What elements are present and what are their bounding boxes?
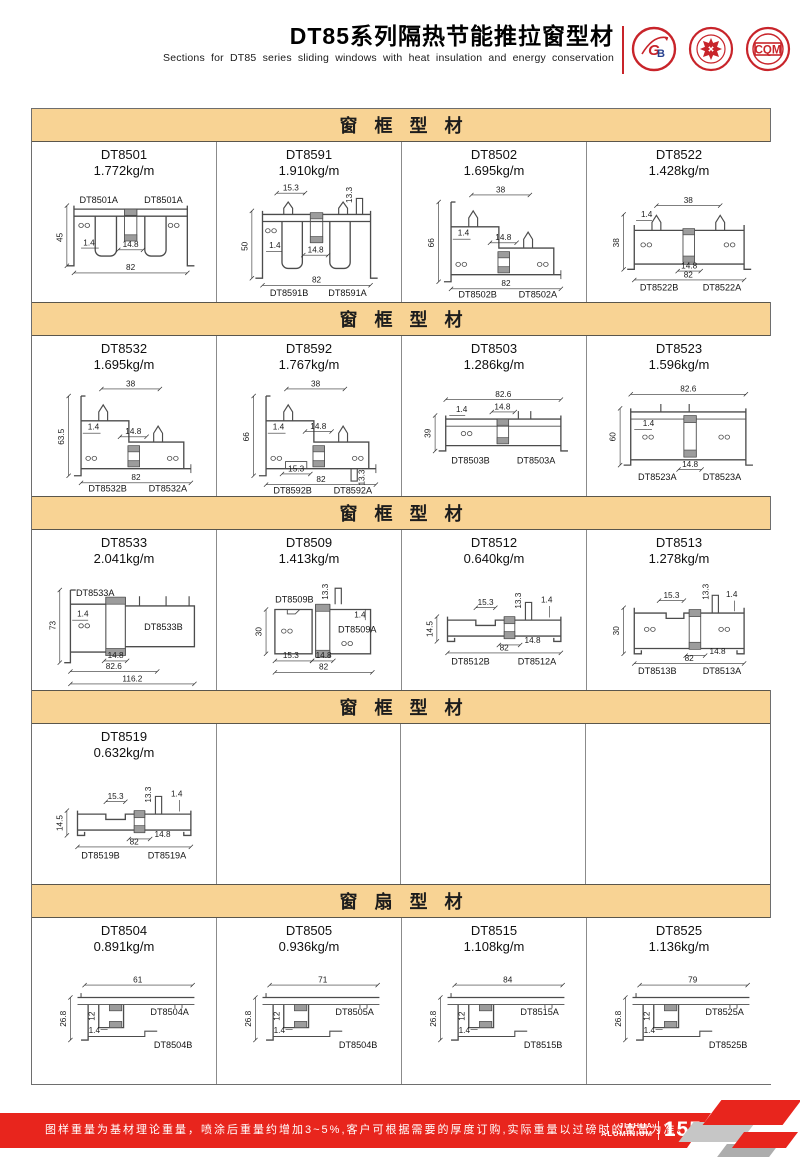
svg-text:DT8503B: DT8503B	[451, 455, 489, 465]
profile-table: 窗框型材 DT8501 1.772kg/m 451.414.882DT8501A…	[31, 108, 771, 1085]
svg-text:13.3: 13.3	[321, 583, 330, 599]
profile-code: DT8502	[402, 147, 586, 163]
svg-text:DT8513B: DT8513B	[638, 666, 676, 676]
profile-cell-header: DT8515 1.108kg/m	[402, 918, 586, 955]
profile-cell-header	[401, 724, 584, 729]
profile-weight: 1.136kg/m	[587, 939, 771, 955]
profile-cell: DT8505 0.936kg/m 7126.8121.4DT8505ADT850…	[217, 918, 402, 1084]
profile-weight: 1.910kg/m	[217, 163, 401, 179]
svg-text:14.8: 14.8	[125, 427, 141, 436]
header-text-block: DT85系列隔热节能推拉窗型材 Sections for DT85 series…	[0, 22, 614, 64]
svg-text:DT8525B: DT8525B	[709, 1040, 747, 1050]
section-frame-3: 窗框型材 DT8533 2.041kg/m 731.414.882.6116.2…	[32, 496, 770, 690]
svg-text:14.8: 14.8	[710, 647, 726, 656]
profile-cell: DT8519 0.632kg/m 15.313.31.414.514.882DT…	[32, 724, 217, 884]
svg-text:DT8502A: DT8502A	[519, 290, 558, 300]
svg-text:14.5: 14.5	[425, 621, 434, 637]
profile-drawing: 7926.8121.4DT8525ADT8525B	[587, 955, 771, 1079]
page-title: DT85系列隔热节能推拉窗型材	[0, 22, 614, 50]
svg-text:1.4: 1.4	[644, 1026, 656, 1035]
profile-cell-header	[586, 724, 770, 729]
profile-weight: 1.413kg/m	[217, 551, 401, 567]
page-footer: 图样重量为基材理论重量，喷涂后重量约增加3~5%,客户可根据需要的厚度订购,实际…	[0, 1100, 800, 1167]
profile-drawing: 15.313.31.43014.882DT8513BDT8513A	[587, 567, 771, 691]
svg-text:50: 50	[240, 241, 249, 251]
svg-text:82.6: 82.6	[680, 385, 696, 394]
profile-drawing: 82.61.414.839DT8503BDT8503A	[402, 373, 586, 497]
profile-cell: DT8592 1.767kg/m 38661.414.815.38213.3DT…	[217, 336, 402, 496]
profile-drawing: 451.414.882DT8501ADT8501A	[32, 179, 216, 303]
profile-weight: 0.936kg/m	[217, 939, 401, 955]
brand-name: JIAHUA ALUMINIUM	[601, 1122, 653, 1138]
svg-text:14.8: 14.8	[525, 636, 541, 645]
profile-code: DT8512	[402, 535, 586, 551]
profile-code: DT8513	[587, 535, 771, 551]
profile-weight: 0.891kg/m	[32, 939, 216, 955]
svg-text:15.3: 15.3	[288, 464, 304, 473]
profile-cell	[586, 724, 770, 884]
svg-text:82: 82	[319, 663, 329, 672]
profile-weight: 2.041kg/m	[32, 551, 216, 567]
profile-cell: DT8501 1.772kg/m 451.414.882DT8501ADT850…	[32, 142, 217, 302]
svg-text:39: 39	[424, 428, 433, 438]
svg-text:DT8512B: DT8512B	[451, 656, 489, 666]
profile-code: DT8515	[402, 923, 586, 939]
profile-cell-header: DT8512 0.640kg/m	[402, 530, 586, 567]
profile-weight: 1.428kg/m	[587, 163, 771, 179]
profile-cell: DT8533 2.041kg/m 731.414.882.6116.2DT853…	[32, 530, 217, 690]
brand-separator	[658, 1121, 659, 1140]
decor-parallelogram-red-1	[703, 1100, 800, 1125]
profile-code: DT8501	[32, 147, 216, 163]
section-title: 窗框型材	[323, 306, 480, 332]
footer-note: 图样重量为基材理论重量，喷涂后重量约增加3~5%,客户可根据需要的厚度订购,实际…	[45, 1113, 690, 1148]
svg-text:38: 38	[684, 196, 694, 205]
profile-cell: DT8503 1.286kg/m 82.61.414.839DT8503BDT8…	[402, 336, 587, 496]
section-frame-1: 窗框型材 DT8501 1.772kg/m 451.414.882DT8501A…	[32, 109, 770, 302]
profile-cell-header: DT8502 1.695kg/m	[402, 142, 586, 179]
profile-drawing: 731.414.882.6116.2DT8533ADT8533B	[32, 567, 216, 691]
svg-text:1.4: 1.4	[541, 595, 553, 604]
svg-text:DT8504B: DT8504B	[339, 1040, 377, 1050]
profile-cell: DT8502 1.695kg/m 38661.414.882DT8502BDT8…	[402, 142, 587, 302]
svg-text:14.8: 14.8	[155, 830, 171, 839]
svg-text:DT8504B: DT8504B	[154, 1040, 192, 1050]
profile-cell: DT8515 1.108kg/m 8426.8121.4DT8515ADT851…	[402, 918, 587, 1084]
svg-text:13.3: 13.3	[514, 592, 523, 608]
profile-cell-header: DT8505 0.936kg/m	[217, 918, 401, 955]
svg-text:38: 38	[496, 185, 506, 194]
section-band: 窗框型材	[32, 496, 770, 530]
svg-text:12: 12	[272, 1011, 281, 1021]
svg-text:DT8519A: DT8519A	[148, 850, 187, 860]
svg-text:82: 82	[126, 263, 136, 272]
svg-text:DT8522B: DT8522B	[640, 283, 678, 293]
profile-cell: DT8532 1.695kg/m 3863.51.414.882DT8532BD…	[32, 336, 217, 496]
profile-cell: DT8512 0.640kg/m 15.313.31.414.514.882DT…	[402, 530, 587, 690]
svg-text:14.8: 14.8	[108, 651, 124, 660]
profile-cell: DT8522 1.428kg/m 381.43814.882DT8522BDT8…	[587, 142, 771, 302]
profile-code: DT8522	[587, 147, 771, 163]
svg-text:14.8: 14.8	[310, 422, 326, 431]
section-band: 窗框型材	[32, 690, 770, 724]
profile-weight: 1.695kg/m	[32, 357, 216, 373]
svg-text:12: 12	[457, 1011, 466, 1021]
profile-code: DT8523	[587, 341, 771, 357]
svg-text:15.3: 15.3	[663, 591, 679, 600]
svg-text:38: 38	[311, 379, 321, 388]
profile-drawing: 15.313.31.414.514.882DT8519BDT8519A	[32, 761, 216, 885]
profile-weight: 1.108kg/m	[402, 939, 586, 955]
svg-text:82: 82	[312, 276, 322, 285]
svg-text:82: 82	[684, 270, 694, 279]
profile-row: DT8533 2.041kg/m 731.414.882.6116.2DT853…	[32, 530, 770, 690]
svg-text:60: 60	[609, 432, 618, 442]
svg-text:DT8501A: DT8501A	[144, 195, 183, 205]
section-frame-4: 窗框型材 DT8519 0.632kg/m 15.313.31.414.514.…	[32, 690, 770, 884]
svg-text:1.4: 1.4	[89, 1026, 101, 1035]
svg-text:1.4: 1.4	[273, 423, 285, 432]
section-sash: 窗扇型材 DT8504 0.891kg/m 6126.8121.4DT8504A…	[32, 884, 770, 1084]
svg-text:DT8533B: DT8533B	[144, 622, 182, 632]
profile-drawing: 381.43814.882DT8522BDT8522A	[587, 179, 771, 303]
profile-cell-header	[217, 724, 400, 729]
svg-text:82: 82	[501, 279, 511, 288]
svg-text:DT8515B: DT8515B	[524, 1040, 562, 1050]
svg-text:1.4: 1.4	[641, 210, 653, 219]
profile-cell	[401, 724, 585, 884]
svg-text:13.3: 13.3	[357, 469, 366, 485]
profile-cell-header: DT8501 1.772kg/m	[32, 142, 216, 179]
profile-weight: 1.772kg/m	[32, 163, 216, 179]
svg-text:82: 82	[316, 475, 326, 484]
profile-drawing: 82.6601.414.8DT8523ADT8523A	[587, 373, 771, 497]
svg-text:15.3: 15.3	[283, 651, 299, 660]
profile-cell: DT8513 1.278kg/m 15.313.31.43014.882DT85…	[587, 530, 771, 690]
profile-cell-header: DT8591 1.910kg/m	[217, 142, 401, 179]
profile-drawing: 15.313.3501.414.882DT8591BDT8591A	[217, 179, 401, 303]
svg-text:DT8519B: DT8519B	[81, 850, 119, 860]
svg-text:61: 61	[133, 975, 143, 984]
svg-text:1.4: 1.4	[726, 590, 738, 599]
svg-text:73: 73	[48, 620, 57, 630]
svg-text:DT8592A: DT8592A	[334, 485, 373, 495]
profile-row: DT8519 0.632kg/m 15.313.31.414.514.882DT…	[32, 724, 770, 884]
svg-text:1.4: 1.4	[354, 610, 366, 619]
profile-cell-header: DT8592 1.767kg/m	[217, 336, 401, 373]
svg-text:82.6: 82.6	[106, 662, 122, 671]
page-subtitle: Sections for DT85 series sliding windows…	[0, 52, 614, 64]
svg-text:DT8522A: DT8522A	[703, 283, 742, 293]
svg-text:1.4: 1.4	[456, 405, 468, 414]
svg-text:14.8: 14.8	[316, 651, 332, 660]
profile-cell-header: DT8513 1.278kg/m	[587, 530, 771, 567]
svg-text:14.8: 14.8	[494, 402, 510, 411]
profile-code: DT8509	[217, 535, 401, 551]
profile-drawing: 15.313.31.414.514.882DT8512BDT8512A	[402, 567, 586, 691]
profile-code: DT8525	[587, 923, 771, 939]
svg-text:13.3: 13.3	[345, 187, 354, 203]
svg-text:DT8592B: DT8592B	[273, 485, 311, 495]
profile-weight: 0.640kg/m	[402, 551, 586, 567]
svg-text:1.4: 1.4	[458, 229, 470, 238]
cqm-cert-icon: CQM	[744, 24, 792, 74]
svg-text:14.8: 14.8	[308, 246, 324, 255]
svg-text:DT8504A: DT8504A	[150, 1007, 189, 1017]
profile-code: DT8503	[402, 341, 586, 357]
section-frame-2: 窗框型材 DT8532 1.695kg/m 3863.51.414.882DT8…	[32, 302, 770, 496]
svg-text:DT8515A: DT8515A	[520, 1007, 559, 1017]
svg-text:DT8523A: DT8523A	[638, 472, 677, 482]
profile-cell: DT8523 1.596kg/m 82.6601.414.8DT8523ADT8…	[587, 336, 771, 496]
section-band: 窗扇型材	[32, 884, 770, 918]
profile-cell-header: DT8525 1.136kg/m	[587, 918, 771, 955]
svg-text:15.3: 15.3	[283, 184, 299, 193]
svg-text:DT8505A: DT8505A	[335, 1007, 374, 1017]
svg-text:82.6: 82.6	[495, 390, 511, 399]
profile-code: DT8519	[32, 729, 216, 745]
profile-weight: 0.632kg/m	[32, 745, 216, 761]
svg-text:14.8: 14.8	[123, 240, 139, 249]
svg-text:DT8533A: DT8533A	[76, 588, 115, 598]
svg-text:1.4: 1.4	[643, 419, 655, 428]
svg-text:30: 30	[255, 627, 264, 637]
profile-weight: 1.278kg/m	[587, 551, 771, 567]
svg-text:82: 82	[685, 654, 695, 663]
svg-text:DT8513A: DT8513A	[703, 666, 742, 676]
profile-cell-header: DT8509 1.413kg/m	[217, 530, 401, 567]
svg-text:38: 38	[126, 379, 136, 388]
profile-weight: 1.286kg/m	[402, 357, 586, 373]
svg-text:71: 71	[318, 975, 328, 984]
profile-code: DT8505	[217, 923, 401, 939]
flower-cert-icon	[687, 24, 735, 74]
svg-text:14.5: 14.5	[55, 815, 64, 831]
svg-text:66: 66	[427, 238, 436, 248]
profile-drawing: 3863.51.414.882DT8532BDT8532A	[32, 373, 216, 497]
profile-code: DT8592	[217, 341, 401, 357]
svg-text:82: 82	[130, 837, 140, 846]
svg-text:26.8: 26.8	[59, 1010, 68, 1026]
svg-text:1.4: 1.4	[77, 610, 89, 619]
svg-text:DT8532A: DT8532A	[149, 484, 188, 494]
svg-text:12: 12	[87, 1011, 96, 1021]
svg-text:82: 82	[131, 473, 141, 482]
profile-cell-header: DT8522 1.428kg/m	[587, 142, 771, 179]
svg-text:45: 45	[55, 232, 64, 242]
svg-text:DT8525A: DT8525A	[705, 1007, 744, 1017]
profile-drawing: 38661.414.882DT8502BDT8502A	[402, 179, 586, 303]
gb-cert-icon: G B	[630, 24, 678, 74]
section-title: 窗框型材	[323, 500, 480, 526]
svg-text:DT8503A: DT8503A	[517, 455, 556, 465]
profile-drawing: 7126.8121.4DT8505ADT8504B	[217, 955, 401, 1079]
section-title: 窗框型材	[323, 694, 480, 720]
svg-text:DT8523A: DT8523A	[703, 472, 742, 482]
profile-drawing: 3013.31.415.314.882DT8509BDT8509A	[217, 567, 401, 691]
profile-cell-header: DT8532 1.695kg/m	[32, 336, 216, 373]
cert-logos: G B CQM	[630, 24, 792, 74]
section-title: 窗框型材	[323, 112, 480, 138]
footer-band: 图样重量为基材理论重量，喷涂后重量约增加3~5%,客户可根据需要的厚度订购,实际…	[0, 1113, 711, 1148]
svg-text:B: B	[657, 48, 665, 60]
header-divider	[622, 26, 624, 74]
page-header: DT85系列隔热节能推拉窗型材 Sections for DT85 series…	[0, 22, 800, 84]
svg-text:63.5: 63.5	[57, 428, 66, 444]
profile-code: DT8532	[32, 341, 216, 357]
svg-text:15.3: 15.3	[108, 792, 124, 801]
svg-text:26.8: 26.8	[429, 1010, 438, 1026]
svg-text:26.8: 26.8	[614, 1010, 623, 1026]
profile-row: DT8501 1.772kg/m 451.414.882DT8501ADT850…	[32, 142, 770, 302]
svg-text:30: 30	[612, 626, 621, 636]
profile-cell: DT8504 0.891kg/m 6126.8121.4DT8504ADT850…	[32, 918, 217, 1084]
profile-cell-header: DT8533 2.041kg/m	[32, 530, 216, 567]
svg-text:1.4: 1.4	[171, 789, 183, 798]
profile-weight: 1.596kg/m	[587, 357, 771, 373]
svg-text:14.8: 14.8	[681, 261, 697, 270]
profile-cell: DT8591 1.910kg/m 15.313.3501.414.882DT85…	[217, 142, 402, 302]
profile-cell-header: DT8504 0.891kg/m	[32, 918, 216, 955]
profile-cell: DT8509 1.413kg/m 3013.31.415.314.882DT85…	[217, 530, 402, 690]
profile-weight: 1.695kg/m	[402, 163, 586, 179]
svg-text:82: 82	[500, 643, 510, 652]
svg-text:38: 38	[612, 238, 621, 248]
decor-parallelogram-red-2	[732, 1132, 798, 1148]
svg-text:15.3: 15.3	[478, 598, 494, 607]
svg-text:DT8509B: DT8509B	[275, 594, 313, 604]
profile-drawing: 8426.8121.4DT8515ADT8515B	[402, 955, 586, 1079]
svg-text:DT8512A: DT8512A	[518, 656, 557, 666]
svg-text:1.4: 1.4	[269, 241, 281, 250]
brand-line2: ALUMINIUM	[601, 1130, 653, 1138]
profile-row: DT8504 0.891kg/m 6126.8121.4DT8504ADT850…	[32, 918, 770, 1084]
svg-text:14.8: 14.8	[495, 233, 511, 242]
profile-drawing: 38661.414.815.38213.3DT8592BDT8592A	[217, 373, 401, 497]
profile-code: DT8591	[217, 147, 401, 163]
svg-text:13.3: 13.3	[144, 786, 153, 802]
svg-text:DT8532B: DT8532B	[88, 484, 126, 494]
section-band: 窗框型材	[32, 109, 770, 142]
svg-text:1.4: 1.4	[88, 423, 100, 432]
svg-text:12: 12	[642, 1011, 651, 1021]
profile-cell	[217, 724, 401, 884]
svg-text:DT8502B: DT8502B	[458, 290, 496, 300]
svg-text:84: 84	[503, 975, 513, 984]
section-band: 窗框型材	[32, 302, 770, 336]
profile-cell-header: DT8519 0.632kg/m	[32, 724, 216, 761]
svg-text:DT8591A: DT8591A	[328, 288, 367, 298]
svg-text:13.3: 13.3	[702, 583, 711, 599]
profile-cell: DT8525 1.136kg/m 7926.8121.4DT8525ADT852…	[587, 918, 771, 1084]
svg-text:116.2: 116.2	[122, 674, 142, 683]
profile-weight: 1.767kg/m	[217, 357, 401, 373]
profile-row: DT8532 1.695kg/m 3863.51.414.882DT8532BD…	[32, 336, 770, 496]
svg-text:79: 79	[688, 975, 698, 984]
profile-cell-header: DT8503 1.286kg/m	[402, 336, 586, 373]
svg-text:14.8: 14.8	[682, 460, 698, 469]
svg-text:DT8509A: DT8509A	[338, 625, 377, 635]
profile-drawing: 6126.8121.4DT8504ADT8504B	[32, 955, 216, 1079]
profile-cell-header: DT8523 1.596kg/m	[587, 336, 771, 373]
profile-code: DT8504	[32, 923, 216, 939]
svg-text:DT8501A: DT8501A	[80, 195, 119, 205]
svg-text:66: 66	[242, 432, 251, 442]
svg-text:1.4: 1.4	[274, 1026, 286, 1035]
svg-text:26.8: 26.8	[244, 1010, 253, 1026]
section-title: 窗扇型材	[323, 888, 480, 914]
svg-text:1.4: 1.4	[83, 238, 95, 247]
svg-text:DT8591B: DT8591B	[270, 288, 308, 298]
svg-text:1.4: 1.4	[459, 1026, 471, 1035]
profile-code: DT8533	[32, 535, 216, 551]
